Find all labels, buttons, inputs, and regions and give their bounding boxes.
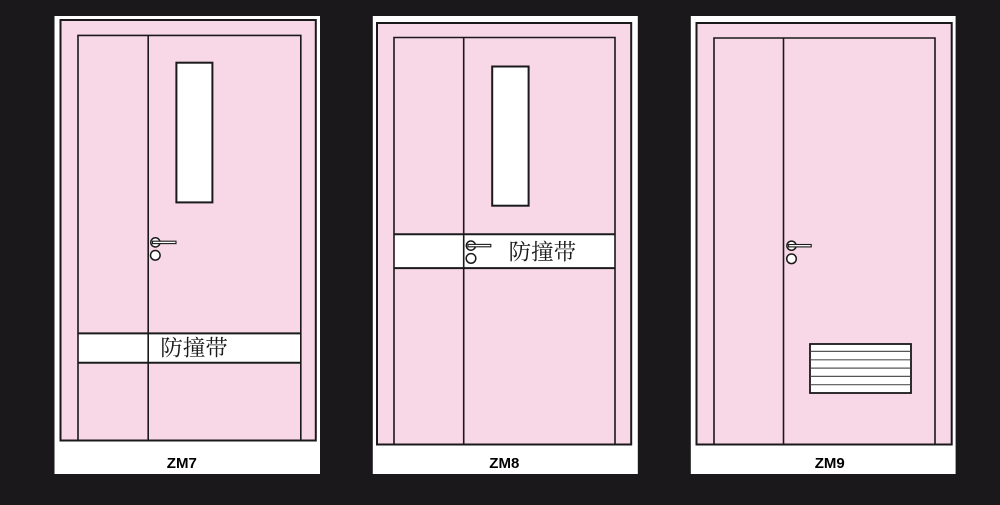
svg-text:ZM9: ZM9 <box>815 455 845 472</box>
svg-text:ZM8: ZM8 <box>489 455 519 472</box>
svg-text:ZM7: ZM7 <box>167 455 197 472</box>
